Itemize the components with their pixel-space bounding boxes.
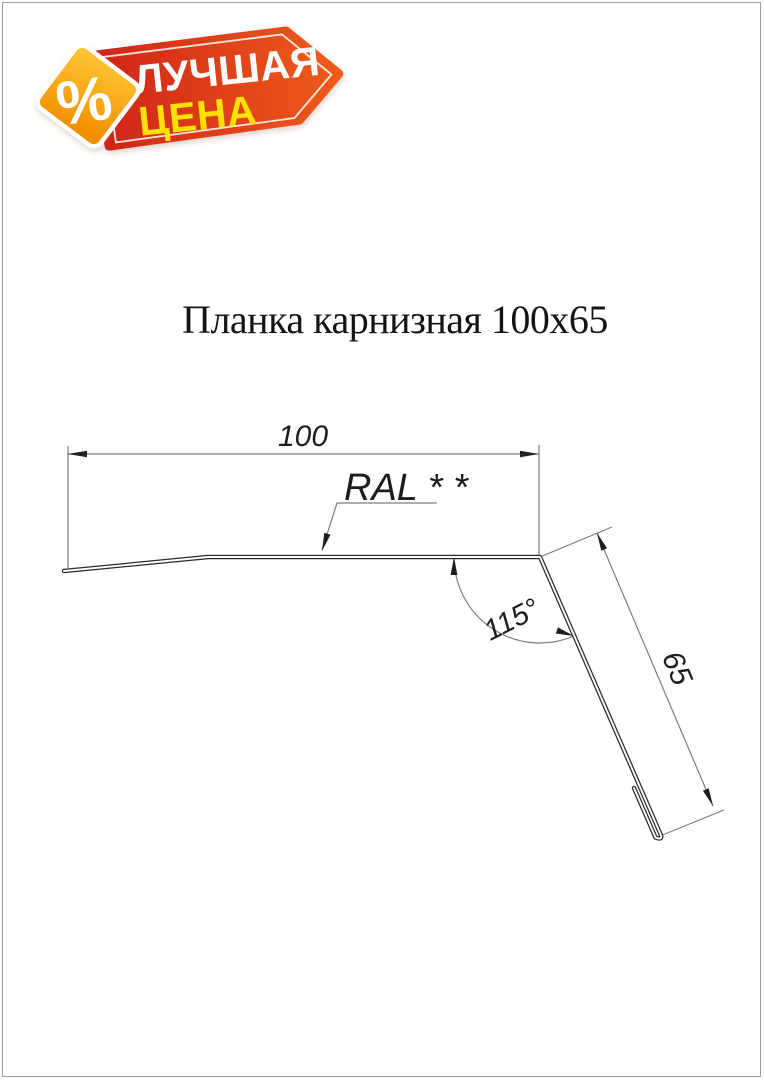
leader-line-coating bbox=[322, 503, 437, 550]
technical-drawing: 100 RAL * * 115° 65 bbox=[0, 0, 764, 1080]
arrowhead-width-left bbox=[68, 451, 87, 457]
dim-width-label: 100 bbox=[278, 420, 328, 453]
profile-core bbox=[64, 557, 661, 839]
product-image-page: ЛУЧШАЯ ЦЕНА % Планка карнизная 100x65 bbox=[0, 0, 764, 1080]
profile-outline bbox=[64, 557, 661, 839]
coating-label: RAL * * bbox=[344, 467, 469, 509]
arrowhead-height-top bbox=[597, 533, 607, 551]
arrowhead-coating-leader bbox=[322, 533, 331, 551]
arrowhead-arc-top bbox=[451, 557, 458, 575]
arrowhead-width-right bbox=[520, 451, 539, 457]
ext-line-height-bottom bbox=[660, 810, 724, 836]
angle-label: 115° bbox=[479, 593, 545, 648]
arrowhead-height-bottom bbox=[703, 788, 713, 806]
